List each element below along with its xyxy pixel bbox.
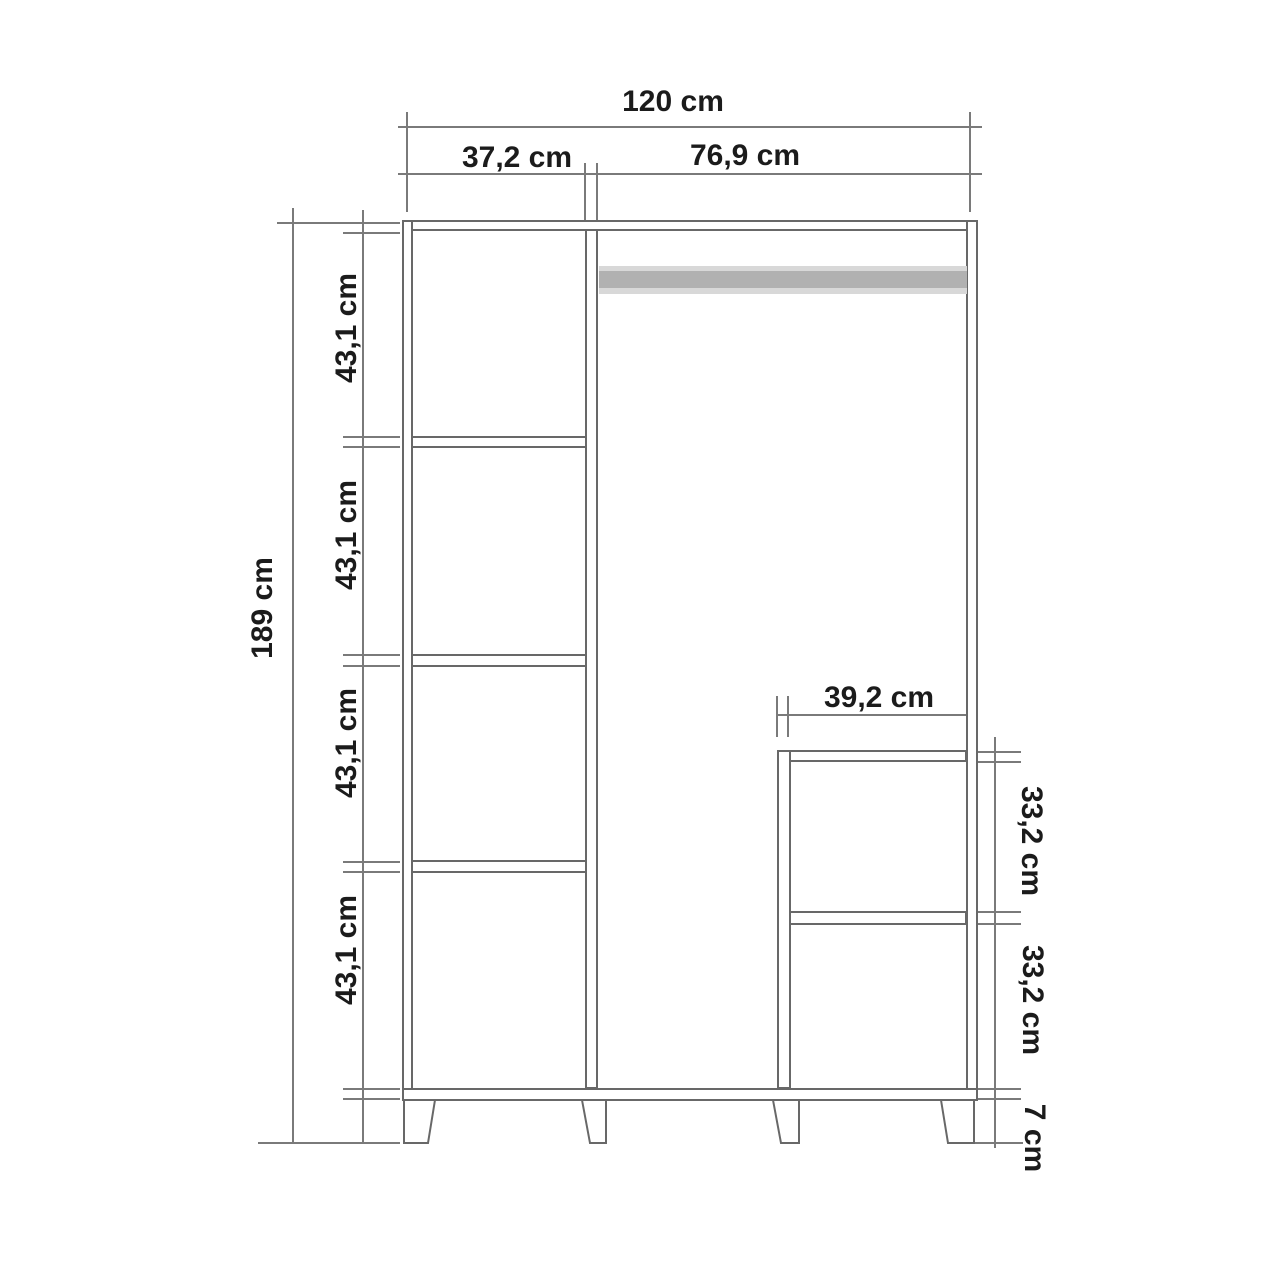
legs-drawing: [0, 0, 1280, 1280]
dim-label-left-section-3: 43,1 cm: [332, 688, 362, 798]
dim-label-sub-section-2: 33,2 cm: [1017, 945, 1047, 1055]
wardrobe-dimension-drawing: 120 cm 37,2 cm 76,9 cm 189 cm 43,1 cm 43…: [0, 0, 1280, 1280]
leg-4: [941, 1100, 974, 1143]
dim-label-left-section-1: 43,1 cm: [332, 273, 362, 383]
leg-3: [773, 1100, 799, 1143]
dim-label-left-section-2: 43,1 cm: [332, 480, 362, 590]
dim-label-sub-section-1: 33,2 cm: [1016, 786, 1046, 896]
dim-label-total-height: 189 cm: [248, 557, 278, 659]
leg-1: [404, 1100, 435, 1143]
dim-label-sub-width: 39,2 cm: [824, 683, 934, 713]
dim-label-leg-height: 7 cm: [1019, 1104, 1049, 1172]
dim-label-left-section-4: 43,1 cm: [332, 895, 362, 1005]
dim-label-left-column-width: 37,2 cm: [462, 143, 572, 173]
dim-label-total-width: 120 cm: [622, 87, 724, 117]
leg-2: [582, 1100, 606, 1143]
dim-label-right-section-width: 76,9 cm: [690, 141, 800, 171]
